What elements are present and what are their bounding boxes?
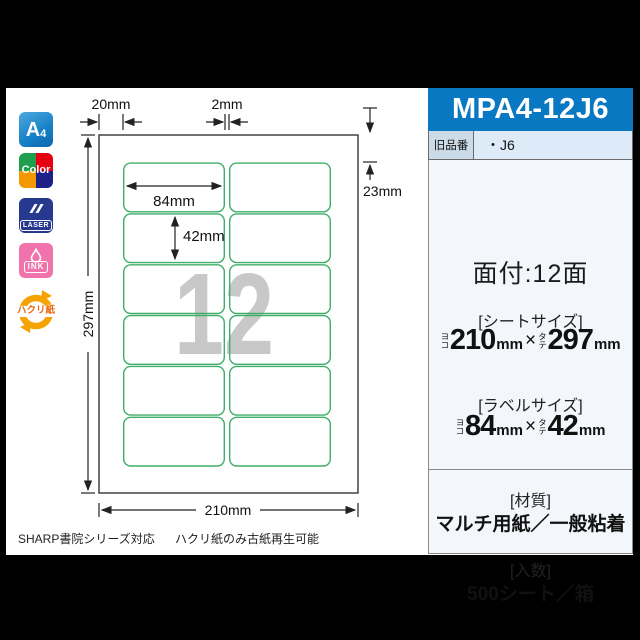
sheet-width-unit: mm: [496, 336, 523, 355]
old-model-value: ・J6: [474, 131, 632, 159]
label-height-unit: mm: [579, 422, 606, 441]
dim-sheet-width-text: 210mm: [205, 502, 252, 518]
spec-panel-body: 面付:12面 [シートサイズ] ヨコ 210 mm × タテ 297 mm [ラ…: [428, 160, 633, 554]
dim-sheet-width: 210mm: [99, 502, 358, 518]
label-width-prefix: ヨコ: [455, 418, 464, 435]
model-number: MPA4-12J6: [452, 93, 609, 126]
times-sign: ×: [525, 416, 536, 438]
dim-left-margin-text: 20mm: [92, 96, 131, 112]
dim-sheet-height: 297mm: [80, 135, 96, 493]
sheet-size-value: ヨコ 210 mm × タテ 297 mm: [429, 326, 632, 355]
color-icon-label: Color: [22, 165, 51, 176]
label-cell: [230, 417, 331, 466]
quantity-heading: [入数]: [429, 557, 632, 581]
model-number-bar: MPA4-12J6: [428, 88, 633, 131]
inkjet-printer-icon: INK: [19, 243, 53, 278]
label-height-prefix: タテ: [538, 418, 547, 435]
old-model-label: 旧品番: [429, 131, 474, 159]
sheet-height-unit: mm: [594, 336, 621, 355]
dim-column-gap-text: 2mm: [211, 96, 242, 112]
dim-top-margin: 23mm: [363, 108, 402, 199]
material-heading: [材質]: [429, 487, 632, 511]
dim-top-margin-text: 23mm: [363, 183, 402, 199]
laser-icon-label: LASER: [20, 220, 52, 231]
sharp-compatibility-note: SHARP書院シリーズ対応: [18, 530, 155, 547]
label-cell: [230, 163, 331, 212]
sheet-width-value: 210: [450, 326, 495, 355]
laser-printer-icon: LASER: [19, 198, 53, 233]
label-width-unit: mm: [496, 422, 523, 441]
sheet-width-prefix: ヨコ: [440, 332, 449, 349]
a4-icon-number: 4: [40, 129, 46, 140]
recycle-paper-note: ハクリ紙のみ古紙再生可能: [175, 530, 319, 547]
sheet-height-prefix: タテ: [538, 332, 547, 349]
spec-panel: MPA4-12J6 旧品番 ・J6 面付:12面 [シートサイズ] ヨコ 210…: [428, 88, 633, 555]
ink-icon-label: INK: [24, 261, 49, 273]
dim-column-gap: 2mm: [206, 96, 248, 130]
panel-divider: [429, 469, 632, 470]
dim-left-margin: 20mm: [80, 96, 142, 130]
a4-icon-letter: A: [26, 120, 40, 140]
release-paper-recycle-icon: ハクリ紙: [17, 288, 55, 335]
dim-label-width-text: 84mm: [153, 193, 195, 210]
sheet-height-value: 297: [548, 326, 593, 355]
color-print-icon: Color: [19, 153, 53, 188]
label-width-value: 84: [465, 412, 495, 441]
recycle-icon-label: ハクリ紙: [17, 305, 55, 316]
dim-sheet-height-text: 297mm: [80, 291, 96, 338]
dim-label-height-text: 42mm: [183, 228, 225, 245]
material-value: マルチ用紙／一般粘着: [429, 509, 632, 536]
a4-size-icon: A4: [19, 112, 53, 147]
label-cell: [124, 417, 225, 466]
imposition-text: 面付:12面: [429, 254, 632, 290]
old-model-row: 旧品番 ・J6: [428, 131, 633, 160]
quantity-value: 500シート／箱: [429, 579, 632, 606]
label-size-value: ヨコ 84 mm × タテ 42 mm: [429, 412, 632, 441]
laser-slashes-icon: [30, 200, 42, 218]
label-height-value: 42: [548, 412, 578, 441]
times-sign: ×: [525, 330, 536, 352]
